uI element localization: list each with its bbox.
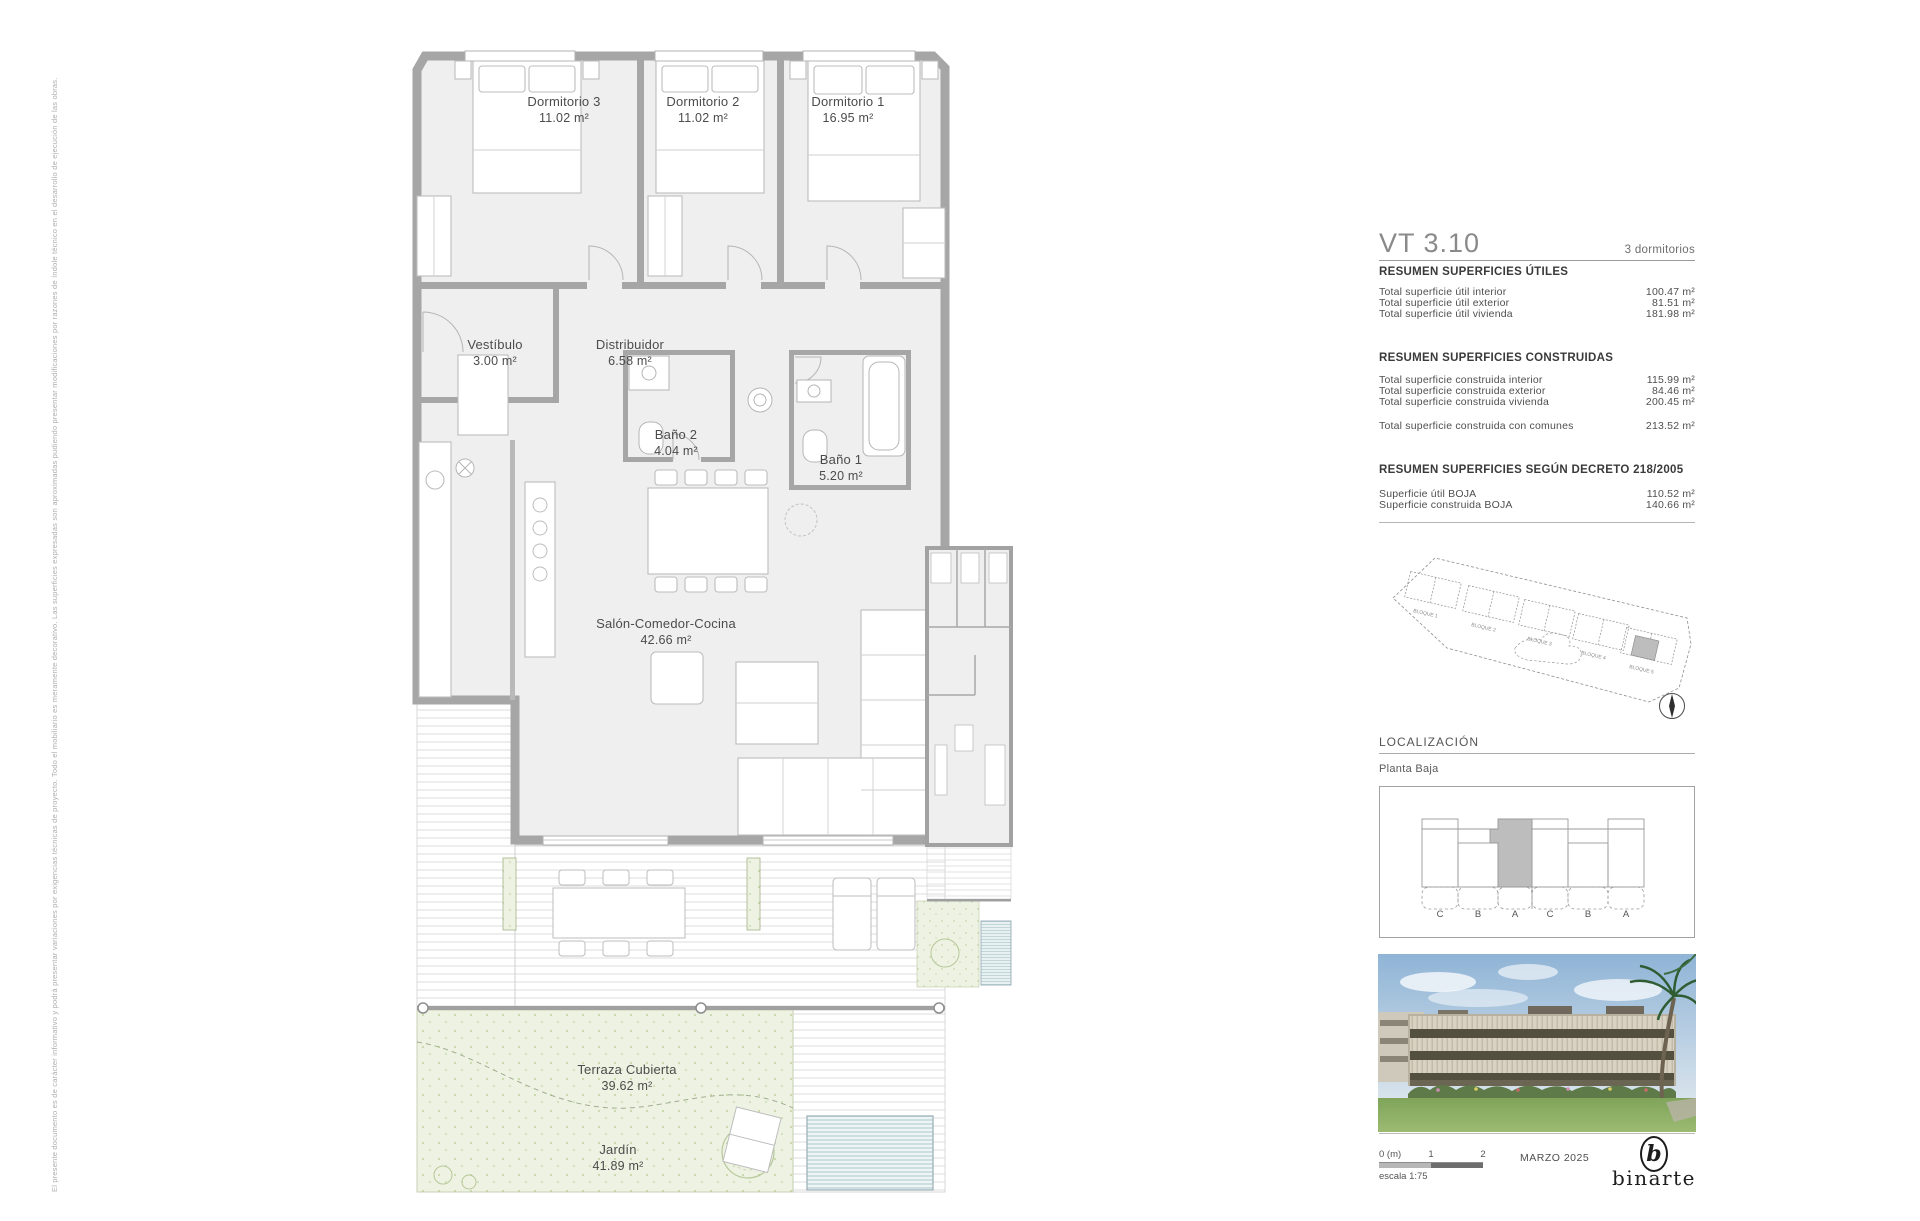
table-row: Superficie construida BOJA 140.66 m² [1379,499,1695,511]
room-label-distribuidor: Distribuidor 6.58 m² [596,336,664,370]
room-name: Baño 2 [654,426,698,443]
unit-letter: C [1547,909,1554,920]
section-title-decreto: RESUMEN SUPERFICIES SEGÚN DECRETO 218/20… [1379,464,1683,476]
unit-letter: B [1475,909,1481,920]
table-row: Total superficie construida con comunes … [1379,420,1695,432]
table-row: Total superficie útil vivienda 181.98 m² [1379,308,1695,320]
building-footprint-drawing [1380,787,1694,937]
building-render-photo [1378,954,1696,1132]
unit-letter: C [1437,909,1444,920]
room-name: Jardín [593,1141,644,1158]
room-label-bano-2: Baño 2 4.04 m² [654,426,698,460]
room-label-vestibulo: Vestíbulo 3.00 m² [467,336,522,370]
section-title-construidas: RESUMEN SUPERFICIES CONSTRUIDAS [1379,352,1613,364]
room-label-dormitorio-2: Dormitorio 2 11.02 m² [666,93,739,127]
bloque-label: BLOQUE 2 [1471,622,1497,634]
footer-divider [1379,1133,1695,1134]
room-area: 3.00 m² [467,353,522,370]
room-name: Distribuidor [596,336,664,353]
localizacion-title: LOCALIZACIÓN [1379,735,1479,749]
room-label-bano-1: Baño 1 5.20 m² [819,451,863,485]
room-label-dormitorio-1: Dormitorio 1 16.95 m² [811,93,884,127]
room-label-salon: Salón-Comedor-Cocina 42.66 m² [596,615,736,649]
mini-plan-drawing [915,545,1015,990]
unit-letter: B [1585,909,1591,920]
room-name: Baño 1 [819,451,863,468]
row-label: Total superficie construida con comunes [1379,420,1574,432]
room-name: Dormitorio 3 [527,93,600,110]
legal-disclaimer: El presente documento es de carácter inf… [50,22,59,1192]
bloque-label: BLOQUE 4 [1581,650,1607,662]
site-key-plan: BLOQUE 1 BLOQUE 2 BLOQUE 3 BLOQUE 4 BLOQ… [1387,552,1695,708]
room-area: 11.02 m² [527,110,600,127]
room-name: Dormitorio 2 [666,93,739,110]
room-name: Terraza Cubierta [577,1061,676,1078]
building-footprint-box: C B A C B A [1379,786,1695,938]
section-title-utiles: RESUMEN SUPERFICIES ÚTILES [1379,266,1568,278]
room-label-dormitorio-3: Dormitorio 3 11.02 m² [527,93,600,127]
room-label-terraza: Terraza Cubierta 39.62 m² [577,1061,676,1095]
room-area: 41.89 m² [593,1158,644,1175]
binarte-logo: b binarte [1612,1140,1702,1190]
row-label: Total superficie útil vivienda [1379,308,1513,320]
localizacion-subtitle: Planta Baja [1379,763,1439,775]
binarte-logo-text: binarte [1612,1166,1696,1190]
room-name: Vestíbulo [467,336,522,353]
room-area: 16.95 m² [811,110,884,127]
scale-mark-2: 2 [1480,1149,1485,1160]
row-value: 213.52 m² [1646,420,1695,432]
row-value: 140.66 m² [1646,499,1695,511]
row-value: 181.98 m² [1646,308,1695,320]
north-compass-icon [1656,690,1688,722]
title-underline [1379,260,1695,261]
scale-bar [1379,1162,1483,1168]
unit-type: 3 dormitorios [1379,244,1695,256]
table-row: Total superficie construida vivienda 200… [1379,396,1695,408]
unit-letter: A [1512,909,1518,920]
room-area: 4.04 m² [654,443,698,460]
row-label: Total superficie construida vivienda [1379,396,1549,408]
bloque-label: BLOQUE 5 [1629,664,1655,676]
room-name: Salón-Comedor-Cocina [596,615,736,632]
room-name: Dormitorio 1 [811,93,884,110]
room-area: 39.62 m² [577,1078,676,1095]
bloque-label: BLOQUE 1 [1413,608,1439,620]
row-value: 200.45 m² [1646,396,1695,408]
localizacion-underline [1379,753,1695,754]
row-label: Superficie construida BOJA [1379,499,1513,511]
scale-mark-0: 0 (m) [1379,1149,1401,1160]
scale-label: escala 1:75 [1379,1171,1428,1182]
section-divider [1379,522,1695,523]
room-area: 6.58 m² [596,353,664,370]
room-area: 5.20 m² [819,468,863,485]
room-label-jardin: Jardín 41.89 m² [593,1141,644,1175]
room-area: 11.02 m² [666,110,739,127]
unit-letter: A [1623,909,1629,920]
room-area: 42.66 m² [596,632,736,649]
bloque-label: BLOQUE 3 [1527,636,1553,648]
plan-sheet: El presente documento es de carácter inf… [0,0,1920,1221]
date-label: MARZO 2025 [1520,1152,1589,1164]
scale-mark-1: 1 [1428,1149,1433,1160]
